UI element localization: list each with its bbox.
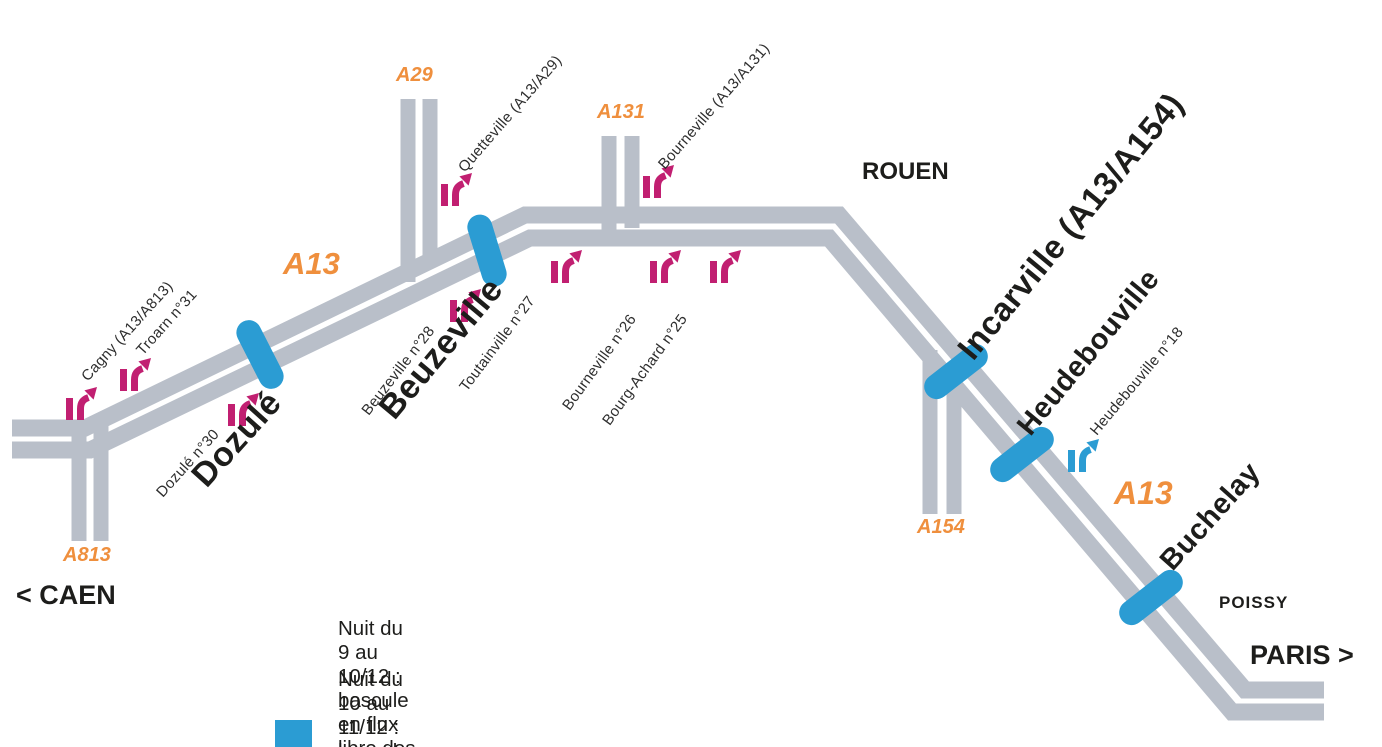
exit-icon-bourg-achard	[708, 248, 742, 284]
exit-icon-troarn	[118, 356, 152, 392]
motorway-label-a13-east: A13	[1114, 477, 1173, 509]
motorway-label-a154: A154	[917, 517, 965, 537]
a13-free-flow-map: Cagny (A13/A813) Troarn n°31 Dozulé n°30…	[0, 0, 1382, 747]
exit-icon-cagny	[64, 385, 98, 421]
motorway-label-a29: A29	[396, 65, 433, 85]
city-label-caen: < CAEN	[16, 582, 116, 609]
motorway-label-a813: A813	[63, 545, 111, 565]
motorway-label-a131: A131	[597, 102, 645, 122]
exit-icon-toutainville	[549, 248, 583, 284]
city-label-rouen: ROUEN	[862, 160, 949, 184]
legend-item-entries-exits: Nuit du 10 au 11/12 : bascule en flux li…	[275, 668, 409, 747]
legend-label-entries-exits: Nuit du 10 au 11/12 : bascule en flux li…	[338, 668, 409, 747]
city-label-poissy: POISSY	[1219, 594, 1288, 611]
exit-icon-quetteville	[439, 171, 473, 207]
motorway-label-a13-west: A13	[283, 248, 340, 279]
exit-icon-bourneville-26	[648, 248, 682, 284]
city-label-paris: PARIS >	[1250, 642, 1354, 669]
exit-icon-heudebouville	[1066, 437, 1100, 473]
